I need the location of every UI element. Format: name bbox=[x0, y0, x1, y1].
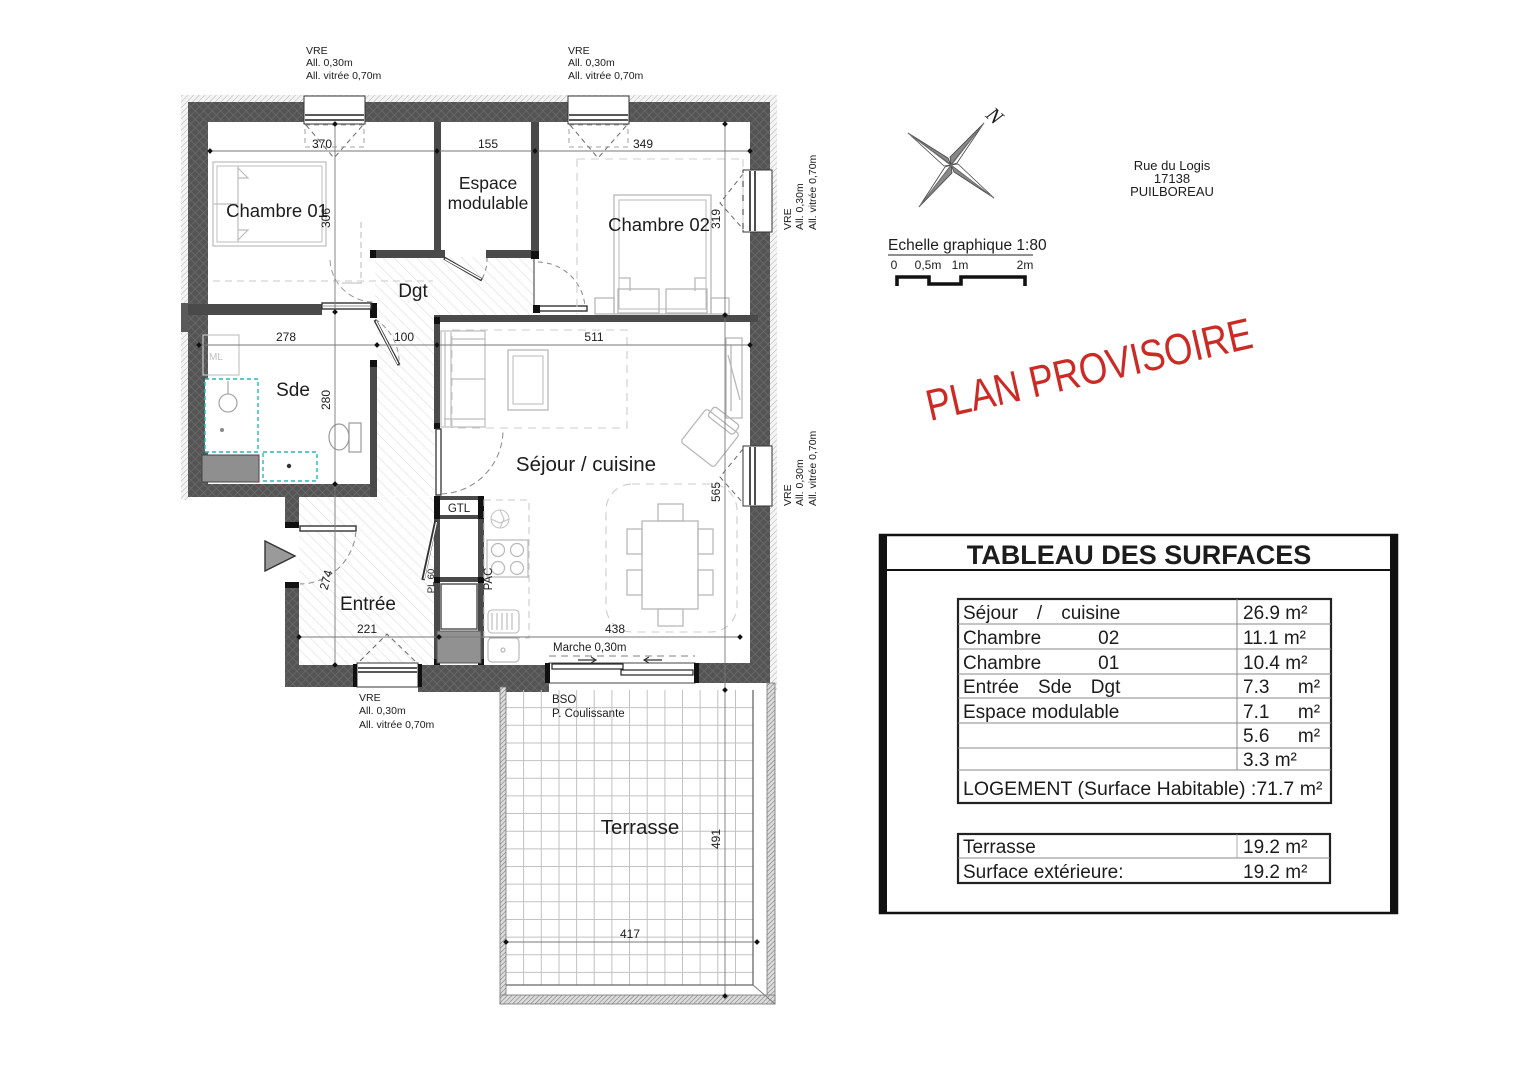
svg-text:278: 278 bbox=[276, 330, 296, 344]
svg-text:10.4 m²: 10.4 m² bbox=[1243, 653, 1307, 674]
svg-text:438: 438 bbox=[605, 622, 625, 636]
svg-text:Terrasse: Terrasse bbox=[963, 837, 1036, 858]
svg-text:VRE: VRE bbox=[359, 692, 381, 704]
svg-text:Sde: Sde bbox=[276, 380, 310, 401]
svg-text:PUILBOREAU: PUILBOREAU bbox=[1130, 184, 1214, 199]
svg-text:Surface extérieure:: Surface extérieure: bbox=[963, 862, 1124, 883]
svg-text:Espace modulable: Espace modulable bbox=[963, 702, 1119, 723]
svg-text:All. 0,30m: All. 0,30m bbox=[306, 57, 353, 69]
svg-text:19.2 m²: 19.2 m² bbox=[1243, 862, 1307, 883]
svg-text:All. vitrée 0,70m: All. vitrée 0,70m bbox=[568, 70, 644, 82]
svg-text:VRE: VRE bbox=[782, 208, 794, 230]
svg-text:221: 221 bbox=[357, 622, 377, 636]
svg-text:370: 370 bbox=[312, 137, 332, 151]
svg-text:VRE: VRE bbox=[782, 484, 794, 506]
svg-text:Dgt: Dgt bbox=[398, 281, 428, 302]
svg-text:Terrasse: Terrasse bbox=[601, 816, 680, 839]
svg-text:PL 60: PL 60 bbox=[426, 569, 437, 593]
svg-text:Chambre 01: Chambre 01 bbox=[963, 653, 1119, 674]
svg-text:Marche 0,30m: Marche 0,30m bbox=[553, 642, 627, 654]
svg-text:0,5m: 0,5m bbox=[915, 258, 942, 272]
svg-text:26.9 m²: 26.9 m² bbox=[1243, 603, 1307, 624]
svg-text:All. 0,30m: All. 0,30m bbox=[359, 705, 406, 717]
svg-text:ML: ML bbox=[209, 352, 223, 363]
svg-text:Echelle graphique 1:80: Echelle graphique 1:80 bbox=[888, 237, 1047, 254]
svg-text:100: 100 bbox=[394, 330, 414, 344]
svg-text:3.3 m²: 3.3 m² bbox=[1243, 750, 1297, 771]
svg-text:Entrée: Entrée bbox=[340, 594, 396, 615]
svg-text:Séjour / cuisine: Séjour / cuisine bbox=[963, 603, 1120, 624]
svg-text:1m: 1m bbox=[952, 258, 969, 272]
svg-text:Espace: Espace bbox=[459, 173, 517, 193]
svg-text:7.1 m²: 7.1 m² bbox=[1243, 702, 1320, 723]
svg-text:BSO: BSO bbox=[552, 694, 576, 706]
svg-text:511: 511 bbox=[584, 330, 603, 344]
svg-text:Séjour / cuisine: Séjour / cuisine bbox=[516, 453, 656, 476]
svg-text:565: 565 bbox=[709, 482, 723, 502]
svg-text:0: 0 bbox=[891, 258, 898, 272]
svg-text:5.6 m²: 5.6 m² bbox=[1243, 726, 1320, 747]
svg-text:Entrée Sde Dgt: Entrée Sde Dgt bbox=[963, 677, 1121, 698]
svg-text:modulable: modulable bbox=[448, 193, 529, 213]
svg-text:All. vitrée 0,70m: All. vitrée 0,70m bbox=[306, 70, 382, 82]
svg-text:319: 319 bbox=[709, 209, 723, 229]
svg-text:All. vitrée 0,70m: All. vitrée 0,70m bbox=[807, 154, 819, 230]
svg-text:LOGEMENT (Surface Habitable) :: LOGEMENT (Surface Habitable) :71.7 m² bbox=[963, 778, 1323, 800]
svg-text:Chambre 02: Chambre 02 bbox=[608, 214, 710, 235]
svg-text:280: 280 bbox=[319, 390, 333, 410]
svg-text:All. vitrée 0,70m: All. vitrée 0,70m bbox=[359, 719, 435, 731]
svg-text:P. Coulissante: P. Coulissante bbox=[552, 708, 625, 720]
svg-text:2m: 2m bbox=[1017, 258, 1034, 272]
svg-text:491: 491 bbox=[709, 829, 723, 849]
svg-text:349: 349 bbox=[633, 137, 653, 151]
svg-text:All. 0,30m: All. 0,30m bbox=[794, 183, 806, 230]
svg-text:All. 0,30m: All. 0,30m bbox=[568, 57, 615, 69]
svg-text:VRE: VRE bbox=[568, 45, 590, 57]
svg-text:Chambre 01: Chambre 01 bbox=[226, 200, 328, 221]
svg-text:417: 417 bbox=[620, 927, 640, 941]
svg-text:7.3 m²: 7.3 m² bbox=[1243, 677, 1320, 698]
svg-text:All. 0,30m: All. 0,30m bbox=[794, 459, 806, 506]
svg-text:155: 155 bbox=[478, 137, 498, 151]
svg-text:All. vitrée 0,70m: All. vitrée 0,70m bbox=[807, 430, 819, 506]
svg-text:11.1 m²: 11.1 m² bbox=[1243, 628, 1306, 649]
svg-text:VRE: VRE bbox=[306, 45, 328, 57]
svg-text:19.2 m²: 19.2 m² bbox=[1243, 837, 1307, 858]
svg-text:TABLEAU DES SURFACES: TABLEAU DES SURFACES bbox=[967, 540, 1312, 570]
svg-text:PAC: PAC bbox=[483, 568, 495, 591]
svg-text:GTL: GTL bbox=[448, 503, 471, 515]
svg-text:Chambre 02: Chambre 02 bbox=[963, 628, 1119, 649]
